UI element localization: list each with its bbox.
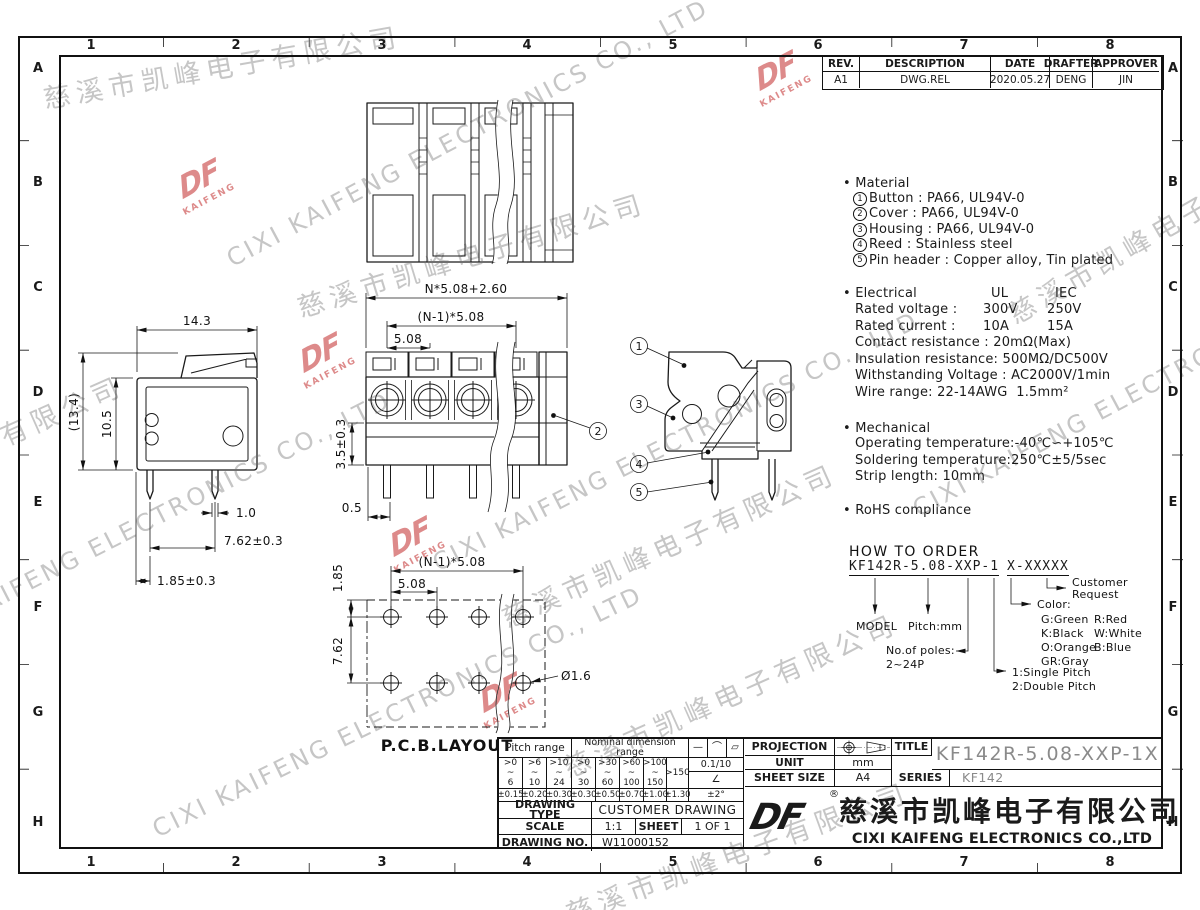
mechanical-line: Operating temperature:-40℃∽+105℃ <box>843 436 1165 453</box>
pitch-range-header: Pitch range <box>499 739 572 758</box>
electrical-row-label: Rated current : <box>855 318 983 335</box>
angle-symbol-icon: ∠ <box>689 772 743 789</box>
grid-col-7-top: 7 <box>954 38 974 53</box>
grid-col-3-top: 3 <box>372 38 392 53</box>
projection-label: PROJECTION <box>745 739 835 756</box>
rohs-note: RoHS compliance <box>843 503 1165 518</box>
nominal-range-col: >30 ~ 60 <box>596 758 620 789</box>
grid-row-f-right: F <box>1163 600 1183 615</box>
drawing-type-label: DRAWING TYPE <box>499 802 592 819</box>
electrical-row: Rated voltage :300V250V <box>843 301 1165 318</box>
drawing-sheet: 14.3 (13.4) 10.5 1.0 7.62±0.3 1.85±0.3 <box>0 0 1200 910</box>
circled-5-icon: 5 <box>853 253 867 267</box>
sheet-size-label: SHEET SIZE <box>745 770 835 787</box>
material-item-text: Button : PA66, UL94V-0 <box>869 191 1025 206</box>
company-logo: DF <box>747 801 806 835</box>
grid-row-e-right: E <box>1163 495 1183 510</box>
unit-label: UNIT <box>745 756 835 770</box>
scale-label: SCALE <box>499 819 592 835</box>
title-label: TITLE <box>892 739 932 756</box>
mechanical-line: Strip length: 10mm <box>843 469 1165 486</box>
pitch-range-col: >10 ~ 24 <box>547 758 572 789</box>
electrical-notes: ElectricalULIEC Rated voltage :300V250V … <box>843 286 1165 401</box>
grid-row-a-left: A <box>28 61 48 76</box>
pitch-range-col: >0 ~ 6 <box>499 758 523 789</box>
sheet-value: 1 OF 1 <box>682 819 743 835</box>
rev-value-description: DWG.REL <box>860 72 991 88</box>
rev-value-rev: A1 <box>823 72 860 88</box>
grid-col-2-top: 2 <box>226 38 246 53</box>
electrical-row-iec: 250V <box>1047 301 1082 318</box>
material-title: Material <box>843 176 1165 191</box>
electrical-line: Withstanding Voltage : AC2000V/1min <box>843 368 1165 385</box>
title-block-divider <box>743 739 744 847</box>
circled-3-icon: 3 <box>853 223 867 237</box>
grid-row-b-right: B <box>1163 175 1183 190</box>
series-label: SERIES <box>892 770 950 787</box>
first-angle-projection-icon <box>836 740 891 755</box>
scale-value: 1:1 <box>592 819 636 835</box>
electrical-row-iec: 15A <box>1047 318 1073 335</box>
material-item-text: Reed : Stainless steel <box>869 237 1013 252</box>
material-item: 5Pin header : Copper alloy, Tin plated <box>843 253 1165 268</box>
electrical-row-label: Rated voltage : <box>855 301 983 318</box>
grid-row-a-right: A <box>1163 61 1183 76</box>
grid-col-4-top: 4 <box>517 38 537 53</box>
nominal-range-header: Nominal dimension range <box>572 739 689 758</box>
grid-col-8-bottom: 8 <box>1100 855 1120 870</box>
nominal-tolerance: ±1.30 <box>667 789 689 802</box>
grid-col-5-bottom: 5 <box>663 855 683 870</box>
parallelogram-symbol-icon: ▱ <box>727 739 743 758</box>
electrical-row-ul: 10A <box>983 318 1047 335</box>
drawing-no-label: DRAWING NO. <box>499 835 592 851</box>
unit-value: mm <box>835 756 892 770</box>
grid-col-6-bottom: 6 <box>808 855 828 870</box>
rev-header-date: DATE <box>991 56 1050 72</box>
electrical-line: Wire range: 22-14AWG 1.5mm² <box>843 385 1165 402</box>
electrical-row-ul: 300V <box>983 301 1047 318</box>
grid-row-d-left: D <box>28 385 48 400</box>
sheet-size-value: A4 <box>835 770 892 787</box>
rev-value-approver: JIN <box>1093 72 1159 88</box>
electrical-title: ElectricalULIEC <box>843 286 1165 301</box>
grid-row-h-left: H <box>28 815 48 830</box>
rev-value-date: 2020.05.27 <box>991 72 1050 88</box>
company-name-cn: 慈溪市凯峰电子有限公司 <box>839 793 1165 830</box>
electrical-col-iec: IEC <box>1055 286 1077 301</box>
electrical-row: Rated current :10A15A <box>843 318 1165 335</box>
grid-col-3-bottom: 3 <box>372 855 392 870</box>
nominal-tolerance: ±0.70 <box>620 789 644 802</box>
grid-col-6-top: 6 <box>808 38 828 53</box>
electrical-title-text: Electrical <box>855 286 917 301</box>
electrical-line: Insulation resistance: 500MΩ/DC500V <box>843 352 1165 369</box>
rohs-title: RoHS compliance <box>843 503 1165 518</box>
grid-row-c-left: C <box>28 280 48 295</box>
grid-col-8-top: 8 <box>1100 38 1120 53</box>
projection-symbol-cell <box>835 739 892 756</box>
material-item-text: Housing : PA66, UL94V-0 <box>869 222 1034 237</box>
series-value: KF142 <box>950 770 1163 787</box>
flatness-tolerance: 0.1/10 <box>689 758 743 772</box>
grid-row-g-right: G <box>1163 705 1183 720</box>
mechanical-line: Soldering temperature:250℃±5/5sec <box>843 453 1165 470</box>
material-item: 3Housing : PA66, UL94V-0 <box>843 222 1165 237</box>
grid-row-b-left: B <box>28 175 48 190</box>
title-value: KF142R-5.08-XXP-1X <box>932 739 1163 770</box>
nominal-tolerance: ±0.50 <box>596 789 620 802</box>
grid-col-7-bottom: 7 <box>954 855 974 870</box>
grid-col-1-top: 1 <box>81 38 101 53</box>
nominal-range-col: >0 ~ 30 <box>572 758 596 789</box>
rev-value-drafter: DENG <box>1050 72 1093 88</box>
title-block: Pitch range Nominal dimension range — ⌒ … <box>497 737 1163 849</box>
grid-row-d-right: D <box>1163 385 1183 400</box>
electrical-col-ul: UL <box>991 286 1008 301</box>
material-item: 4Reed : Stainless steel <box>843 237 1165 252</box>
mechanical-notes: Mechanical Operating temperature:-40℃∽+1… <box>843 421 1165 486</box>
grid-col-1-bottom: 1 <box>81 855 101 870</box>
company-name-en: CIXI KAIFENG ELECTRONICS CO.,LTD <box>839 832 1165 847</box>
material-notes: Material 1Button : PA66, UL94V-0 2Cover … <box>843 176 1165 268</box>
drawing-no-value: W11000152 <box>592 835 743 851</box>
nominal-range-col: >60 ~ 100 <box>620 758 644 789</box>
rev-header-approver: APPROVER <box>1093 56 1159 72</box>
grid-col-2-bottom: 2 <box>226 855 246 870</box>
line-symbol-icon: — <box>689 739 708 758</box>
pitch-range-col: >6 ~ 10 <box>523 758 547 789</box>
sheet-label: SHEET <box>636 819 682 835</box>
grid-col-5-top: 5 <box>663 38 683 53</box>
arc-symbol-icon: ⌒ <box>708 739 727 758</box>
nominal-range-col: >100 ~ 150 <box>644 758 667 789</box>
material-item-text: Pin header : Copper alloy, Tin plated <box>869 253 1113 268</box>
rev-header-rev: REV. <box>823 56 860 72</box>
grid-row-e-left: E <box>28 495 48 510</box>
circled-4-icon: 4 <box>853 238 867 252</box>
mechanical-title: Mechanical <box>843 421 1165 436</box>
rev-header-drafter: DRAFTER <box>1050 56 1093 72</box>
circled-2-icon: 2 <box>853 207 867 221</box>
material-item-text: Cover : PA66, UL94V-0 <box>869 206 1019 221</box>
circled-1-icon: 1 <box>853 192 867 206</box>
material-item: 1Button : PA66, UL94V-0 <box>843 191 1165 206</box>
rev-header-description: DESCRIPTION <box>860 56 991 72</box>
drawing-type-value: CUSTOMER DRAWING <box>592 802 743 819</box>
nominal-range-last: >150 <box>667 758 689 789</box>
grid-col-4-bottom: 4 <box>517 855 537 870</box>
grid-row-g-left: G <box>28 705 48 720</box>
grid-row-f-left: F <box>28 600 48 615</box>
revision-table: REV. DESCRIPTION DATE DRAFTER APPROVER A… <box>822 55 1164 90</box>
angle-tolerance: ±2° <box>689 789 743 802</box>
electrical-line: Contact resistance : 20mΩ(Max) <box>843 335 1165 352</box>
grid-row-c-right: C <box>1163 280 1183 295</box>
material-item: 2Cover : PA66, UL94V-0 <box>843 206 1165 221</box>
registered-mark-icon: ® <box>829 789 839 800</box>
